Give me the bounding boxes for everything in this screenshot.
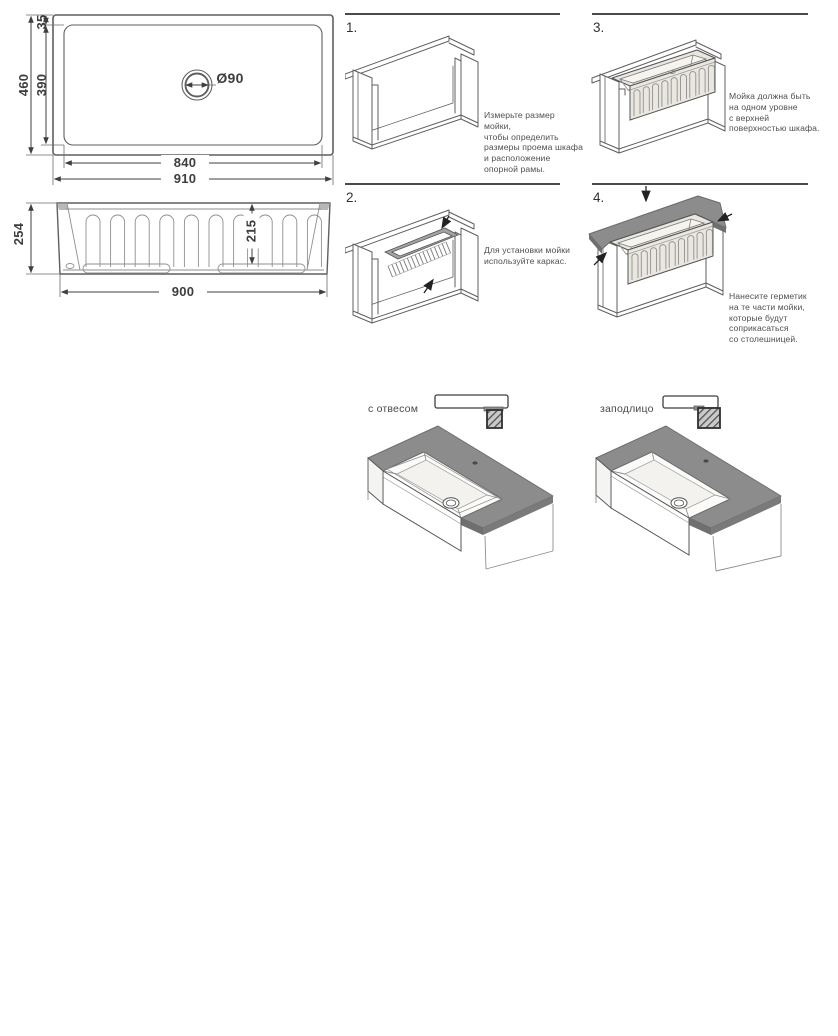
dim-overall-depth: 460 xyxy=(16,68,32,102)
installation-sheet: 460 390 35 Ø90 840 910 xyxy=(0,0,838,1036)
mount-option-flush-drawing xyxy=(591,411,791,576)
dim-rim-offset: 35 xyxy=(34,10,50,34)
step2-text: Для установки мойки используйте каркас. xyxy=(484,245,588,267)
step3-text: Мойка должна быть на одном уровне с верх… xyxy=(729,91,824,134)
step2-illustration xyxy=(345,192,497,342)
divider-step2 xyxy=(345,183,560,185)
dim-inner-depth: 390 xyxy=(34,68,50,102)
dim-bowl-depth: 215 xyxy=(244,214,260,249)
dim-width: 900 xyxy=(159,284,207,300)
step4-illustration xyxy=(586,182,751,337)
dim-height: 254 xyxy=(11,217,27,251)
step1-illustration xyxy=(345,24,500,164)
dim-inner-width: 840 xyxy=(161,155,209,171)
mount-option-overhang-drawing xyxy=(363,411,563,576)
step3-illustration xyxy=(588,20,750,170)
dim-drain-diameter: Ø90 xyxy=(207,70,253,87)
divider-step1 xyxy=(345,13,560,15)
divider-step3 xyxy=(592,13,808,15)
step1-text: Измерьте размер мойки, чтобы определить … xyxy=(484,110,584,175)
dim-overall-width: 910 xyxy=(161,171,209,187)
step4-text: Нанесите герметик на те части мойки, кот… xyxy=(729,291,824,345)
